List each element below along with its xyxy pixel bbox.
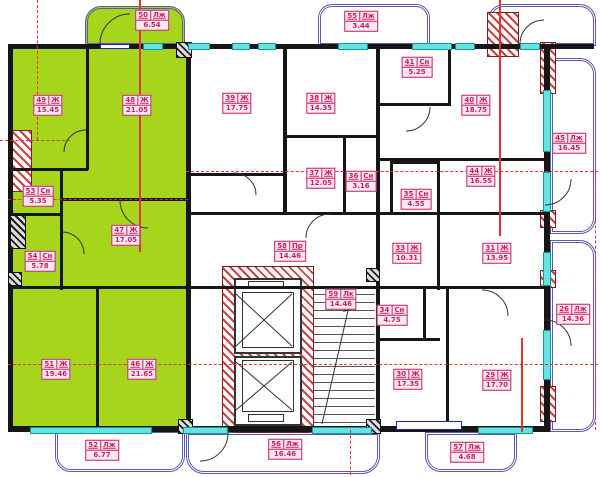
elevator-car-cab xyxy=(242,360,294,412)
stairs-treads xyxy=(314,294,375,426)
window-strip xyxy=(543,172,551,212)
wall xyxy=(186,212,545,215)
window-strip xyxy=(478,427,533,434)
window-strip xyxy=(232,43,250,50)
axis-line xyxy=(37,0,38,140)
axis-line xyxy=(8,364,598,365)
wall xyxy=(96,286,99,428)
red-column xyxy=(487,12,519,57)
window-strip xyxy=(143,43,163,50)
room-label-36: 36Сн 3.16 xyxy=(346,171,377,192)
wall xyxy=(448,44,451,106)
section-line xyxy=(139,0,141,252)
room-label-44: 44Ж 16.55 xyxy=(466,166,495,187)
wall xyxy=(60,168,63,290)
axis-line xyxy=(595,170,596,430)
wall xyxy=(423,288,426,340)
door-arc xyxy=(406,107,430,131)
room-label-57: 57Лж 4.68 xyxy=(450,442,484,463)
door-arc xyxy=(482,290,508,316)
balcony-door-sill xyxy=(100,44,130,49)
wall xyxy=(8,286,548,289)
wall xyxy=(446,288,449,428)
room-label-39: 39Ж 17.75 xyxy=(222,93,251,114)
window-strip xyxy=(543,90,551,152)
wall xyxy=(186,44,191,432)
room-label-34: 34Сн 4.75 xyxy=(377,305,408,326)
room-label-53: 53Сн 5.35 xyxy=(23,186,54,207)
wall xyxy=(8,44,594,49)
wall xyxy=(285,135,380,138)
door-arc xyxy=(234,173,256,195)
window-strip xyxy=(258,43,276,50)
room-label-49: 49Ж 15.45 xyxy=(33,95,62,116)
room-label-59: 59Лк 14.46 xyxy=(325,289,356,310)
window-strip xyxy=(338,43,368,50)
room-label-58: 58Пр 14.46 xyxy=(274,241,306,262)
balcony-rail-bottom-left xyxy=(55,430,185,472)
section-line xyxy=(521,338,523,432)
wall xyxy=(380,103,450,106)
room-label-31: 31Ж 13.95 xyxy=(482,243,511,264)
room-label-56: 56Лж 16.46 xyxy=(268,439,302,460)
room-label-40: 40Ж 18.75 xyxy=(461,95,490,116)
window-strip xyxy=(183,427,228,434)
section-line xyxy=(499,0,501,236)
room-label-38: 38Ж 14.35 xyxy=(306,93,335,114)
floor-plan: 50Лж 6.54 49Ж 15.45 48Ж 21.05 53Сн 5.35 … xyxy=(0,0,600,477)
wall xyxy=(376,44,380,428)
room-label-46: 46Ж 21.65 xyxy=(127,359,156,380)
room-label-26: 26Лж 14.36 xyxy=(556,304,590,325)
wall xyxy=(378,338,440,341)
room-label-45: 45Лж 16.45 xyxy=(552,133,586,154)
room-label-51: 51Ж 19.46 xyxy=(41,359,70,380)
elevator-car-cab xyxy=(242,292,294,348)
wall xyxy=(186,173,287,176)
vent-column xyxy=(8,272,22,286)
vent-column xyxy=(10,215,26,249)
room-label-29: 29Ж 17.70 xyxy=(482,370,511,391)
room-label-30: 30Ж 17.35 xyxy=(393,369,422,390)
window-strip xyxy=(543,330,551,380)
wall xyxy=(390,161,440,164)
room-label-37: 37Ж 12.05 xyxy=(306,168,335,189)
room-label-41: 41Сн 5.25 xyxy=(402,57,433,78)
vent-column xyxy=(366,268,380,282)
room-label-48: 48Ж 21.05 xyxy=(122,95,151,116)
window-strip xyxy=(312,427,372,434)
room-label-50: 50Лж 6.54 xyxy=(135,10,169,31)
room-label-54: 54Сн 5.78 xyxy=(25,251,56,272)
axis-line xyxy=(0,140,70,141)
balcony-rail-right-lower xyxy=(550,240,596,432)
window-strip xyxy=(520,43,540,50)
window-strip xyxy=(543,252,551,286)
wall xyxy=(8,168,88,171)
room-label-52: 52Лж 6.77 xyxy=(85,440,119,461)
wall xyxy=(437,163,440,290)
window-strip xyxy=(412,43,452,50)
window-symbol xyxy=(396,421,462,430)
door-arc xyxy=(306,214,330,238)
wall xyxy=(283,44,287,214)
window-strip xyxy=(30,427,152,434)
axis-line xyxy=(186,171,598,172)
window-strip xyxy=(455,43,475,50)
window-strip xyxy=(188,43,210,50)
room-label-35: 35Сн 4.55 xyxy=(401,189,432,210)
elevator-counterweight xyxy=(248,414,284,422)
wall xyxy=(86,44,89,170)
room-label-33: 33Ж 10.31 xyxy=(392,243,421,264)
axis-line xyxy=(350,430,351,475)
room-label-47: 47Ж 17.05 xyxy=(111,225,140,246)
room-label-55: 55Лж 3.44 xyxy=(344,11,378,32)
